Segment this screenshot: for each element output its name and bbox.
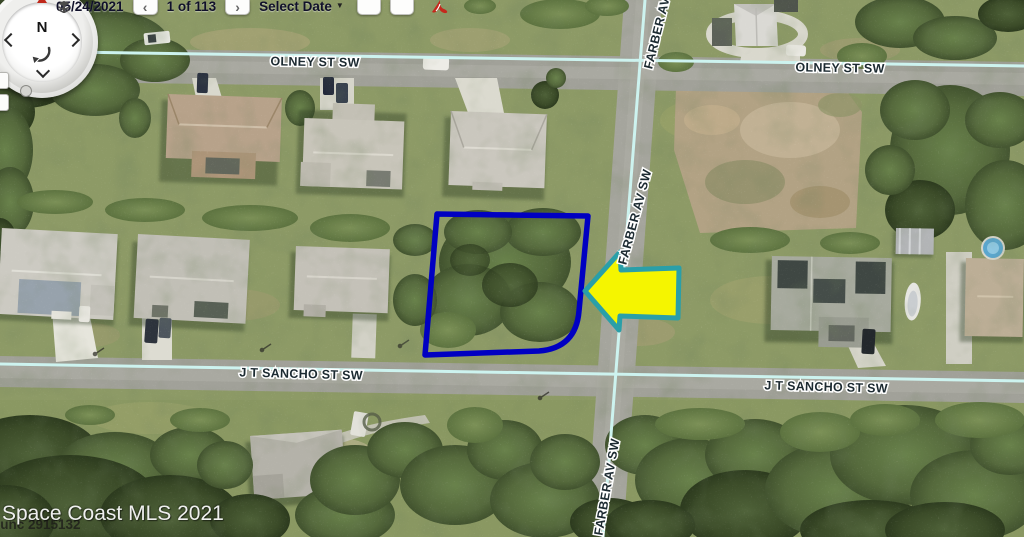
street-label-olney-right: OLNEY ST SW [795,60,884,75]
aerial-map[interactable]: OLNEY ST SW OLNEY ST SW J T SANCHO ST SW… [0,0,1024,537]
texture-grain [0,0,1024,537]
next-date-button[interactable]: › [225,0,250,15]
pdf-export-button[interactable] [431,0,449,14]
north-label: N [0,19,98,36]
select-date-label: Select Date [259,0,332,14]
chevron-left-icon: ‹ [143,2,148,12]
pin-icon [56,0,72,13]
mls-map-page: OLNEY ST SW OLNEY ST SW J T SANCHO ST SW… [0,0,1024,537]
select-date-dropdown[interactable]: Select Date ▼ [259,0,344,14]
north-pointer-icon [37,0,47,3]
chevron-right-icon: › [235,2,240,12]
street-label-olney-left: OLNEY ST SW [270,54,359,69]
mls-watermark: Space Coast MLS 2021 [2,502,224,526]
toolbar: 05/24/2021 ‹ 1 of 113 › Select Date ▼ [56,0,449,15]
prev-date-button[interactable]: ‹ [133,0,158,15]
pdf-icon [431,0,449,14]
photo-counter: 1 of 113 [167,0,217,14]
caret-down-icon: ▼ [336,0,344,12]
zoom-out-button[interactable] [0,94,9,111]
zoom-in-button[interactable] [0,72,9,89]
pin-button[interactable] [390,0,414,15]
layers-button[interactable] [357,0,381,15]
rotate-view-icon[interactable] [30,44,54,66]
compass-knob[interactable] [20,85,32,97]
